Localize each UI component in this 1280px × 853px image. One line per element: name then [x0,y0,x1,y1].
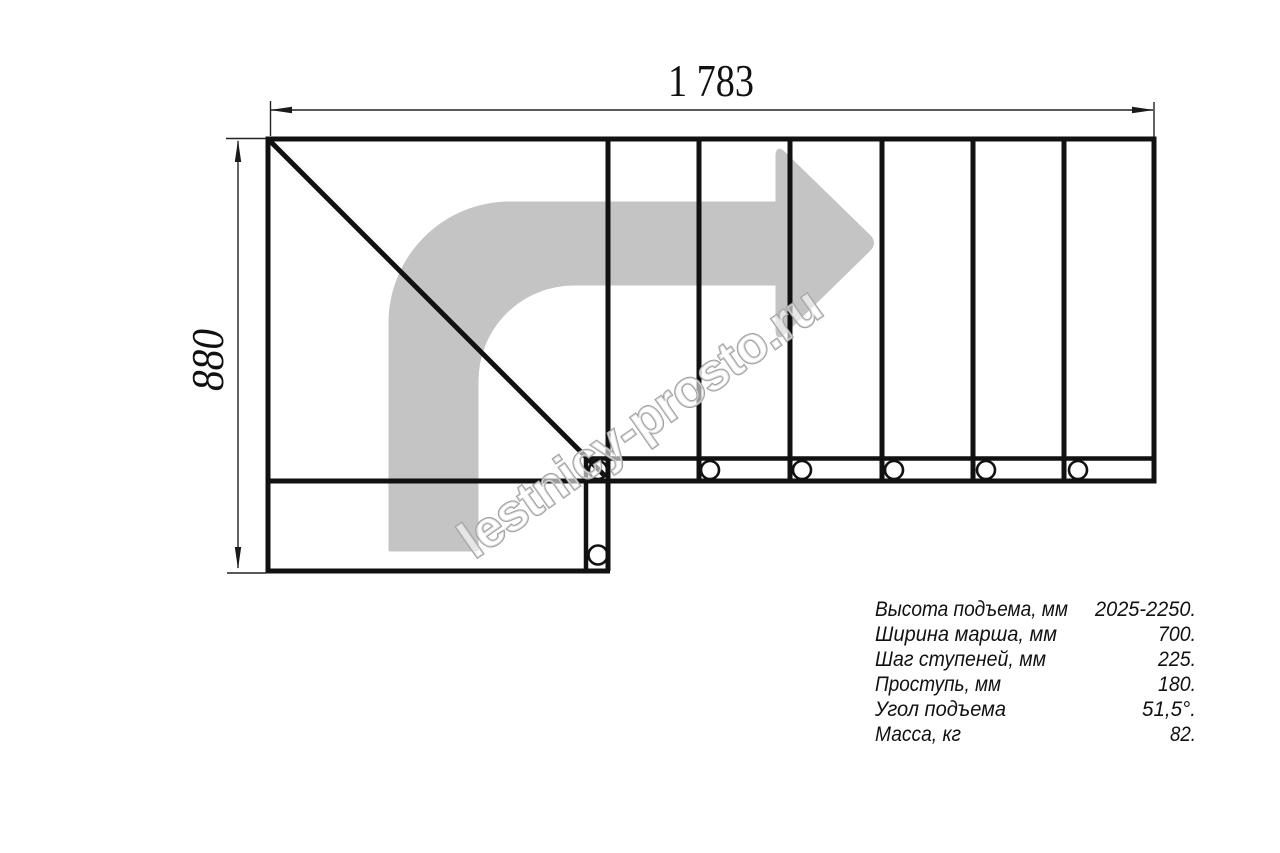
svg-text:lestnicy-prosto.ru: lestnicy-prosto.ru [448,276,832,569]
svg-text:Угол подъема: Угол подъема [874,697,1006,721]
svg-text:Ширина марша, мм: Ширина марша, мм [875,622,1057,646]
svg-text:700.: 700. [1158,622,1196,646]
svg-text:2025-2250.: 2025-2250. [1094,597,1196,621]
svg-text:Проступь, мм: Проступь, мм [875,672,1001,696]
svg-text:82.: 82. [1170,722,1196,746]
svg-text:180.: 180. [1158,672,1196,696]
svg-text:Шаг ступеней, мм: Шаг ступеней, мм [875,647,1046,671]
svg-text:Масса, кг: Масса, кг [875,722,961,746]
svg-text:51,5°.: 51,5°. [1142,697,1196,721]
svg-text:1 783: 1 783 [668,55,754,106]
svg-text:880: 880 [182,329,233,391]
svg-text:Высота подъема, мм: Высота подъема, мм [875,597,1068,621]
svg-text:225.: 225. [1157,647,1196,671]
